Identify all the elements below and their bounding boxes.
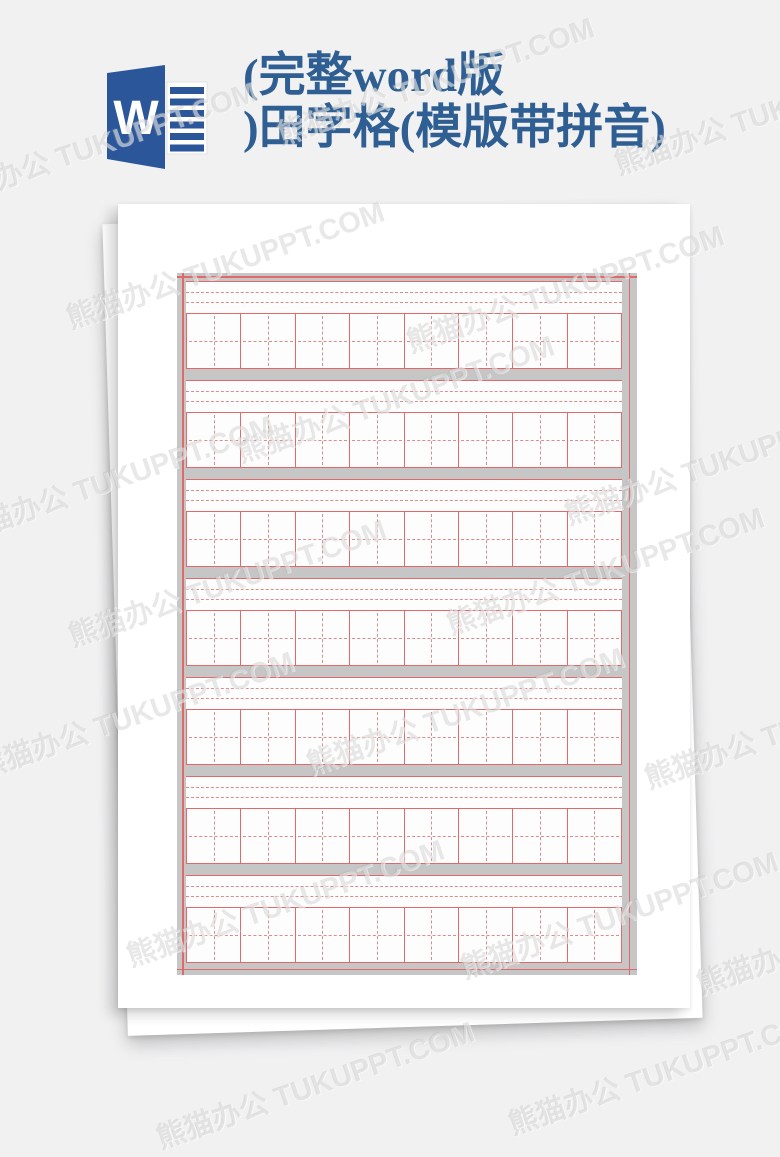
tianzige-cell [187, 314, 241, 368]
tianzige-cell [241, 611, 295, 665]
tianzige-cell [241, 314, 295, 368]
tianzige-cell [459, 908, 513, 962]
grid-border-right [629, 273, 631, 975]
word-logo-icon: W [103, 62, 211, 174]
tianzige-cell [568, 314, 621, 368]
pinyin-dashed-line [186, 886, 622, 887]
tianzige-cell [513, 512, 567, 566]
tianzige-cell [187, 512, 241, 566]
tianzige-cell [187, 908, 241, 962]
tianzige-cell [405, 413, 459, 467]
tianzige-square-row [186, 709, 622, 765]
tianzige-cell [241, 908, 295, 962]
tianzige-square-row [186, 808, 622, 864]
tianzige-cell [568, 413, 621, 467]
tianzige-cell [568, 611, 621, 665]
pinyin-dashed-line [186, 688, 622, 689]
pinyin-dashed-line [186, 896, 622, 897]
tianzige-square-row [186, 610, 622, 666]
tianzige-cell [405, 809, 459, 863]
tianzige-cell [350, 908, 404, 962]
pinyin-lines-row [186, 578, 622, 610]
grid-row-unit [186, 875, 622, 963]
pinyin-dashed-line [186, 797, 622, 798]
tianzige-cell [459, 314, 513, 368]
grid-row-unit [186, 380, 622, 468]
pinyin-dashed-line [186, 500, 622, 501]
tianzige-cell [350, 512, 404, 566]
pinyin-dashed-line [186, 490, 622, 491]
tianzige-square-row [186, 313, 622, 369]
tianzige-cell [405, 908, 459, 962]
grid-border-top [177, 276, 637, 278]
paper-sheet-front[interactable] [118, 204, 690, 1008]
tianzige-square-row [186, 412, 622, 468]
tianzige-cell [241, 512, 295, 566]
pinyin-dashed-line [186, 599, 622, 600]
grid-row-unit [186, 776, 622, 864]
tianzige-cell [405, 710, 459, 764]
header: W (完整word版 )田字格(模版带拼音) [0, 0, 780, 200]
tianzige-cell [187, 809, 241, 863]
word-logo-letter: W [113, 92, 159, 145]
tianzige-cell [350, 611, 404, 665]
pinyin-lines-row [186, 380, 622, 412]
pinyin-lines-row [186, 776, 622, 808]
tianzige-cell [513, 413, 567, 467]
document-title: (完整word版 )田字格(模版带拼音) [243, 50, 773, 154]
tianzige-cell [405, 611, 459, 665]
tianzige-cell [296, 809, 350, 863]
pinyin-dashed-line [186, 589, 622, 590]
tianzige-cell [296, 413, 350, 467]
tianzige-cell [187, 413, 241, 467]
tianzige-cell [459, 512, 513, 566]
tianzige-cell [513, 908, 567, 962]
grid-row-unit [186, 578, 622, 666]
tianzige-cell [513, 809, 567, 863]
tianzige-square-row [186, 907, 622, 963]
grid-row-unit [186, 281, 622, 369]
tianzige-cell [513, 710, 567, 764]
pinyin-lines-row [186, 281, 622, 313]
tianzige-cell [459, 809, 513, 863]
tianzige-cell [187, 710, 241, 764]
tianzige-cell [350, 413, 404, 467]
grid-row-unit [186, 677, 622, 765]
title-line-2: )田字格(模版带拼音) [243, 102, 773, 154]
tianzige-cell [350, 809, 404, 863]
pinyin-dashed-line [186, 787, 622, 788]
tianzige-cell [241, 413, 295, 467]
tianzige-square-row [186, 511, 622, 567]
tianzige-cell [350, 710, 404, 764]
pinyin-lines-row [186, 479, 622, 511]
tianzige-grid [177, 273, 637, 975]
tianzige-cell [459, 611, 513, 665]
tianzige-cell [405, 512, 459, 566]
tianzige-cell [459, 710, 513, 764]
grid-content [186, 281, 622, 974]
pinyin-dashed-line [186, 698, 622, 699]
tianzige-cell [513, 611, 567, 665]
tianzige-cell [350, 314, 404, 368]
tianzige-cell [513, 314, 567, 368]
tianzige-cell [459, 413, 513, 467]
tianzige-cell [241, 809, 295, 863]
pinyin-lines-row [186, 677, 622, 709]
tianzige-cell [568, 809, 621, 863]
tianzige-cell [296, 512, 350, 566]
pinyin-dashed-line [186, 292, 622, 293]
tianzige-cell [296, 710, 350, 764]
title-line-1: (完整word版 [243, 50, 773, 102]
tianzige-cell [568, 710, 621, 764]
pinyin-dashed-line [186, 391, 622, 392]
tianzige-cell [296, 908, 350, 962]
tianzige-cell [241, 710, 295, 764]
tianzige-cell [296, 314, 350, 368]
watermark-text: 熊猫办公 TUKUPPT.COM [690, 855, 780, 1003]
grid-row-unit [186, 479, 622, 567]
tianzige-cell [405, 314, 459, 368]
tianzige-cell [568, 512, 621, 566]
pinyin-lines-row [186, 875, 622, 907]
pinyin-dashed-line [186, 302, 622, 303]
tianzige-cell [568, 908, 621, 962]
grid-border-left [182, 273, 184, 975]
tianzige-cell [296, 611, 350, 665]
tianzige-cell [187, 611, 241, 665]
pinyin-dashed-line [186, 401, 622, 402]
